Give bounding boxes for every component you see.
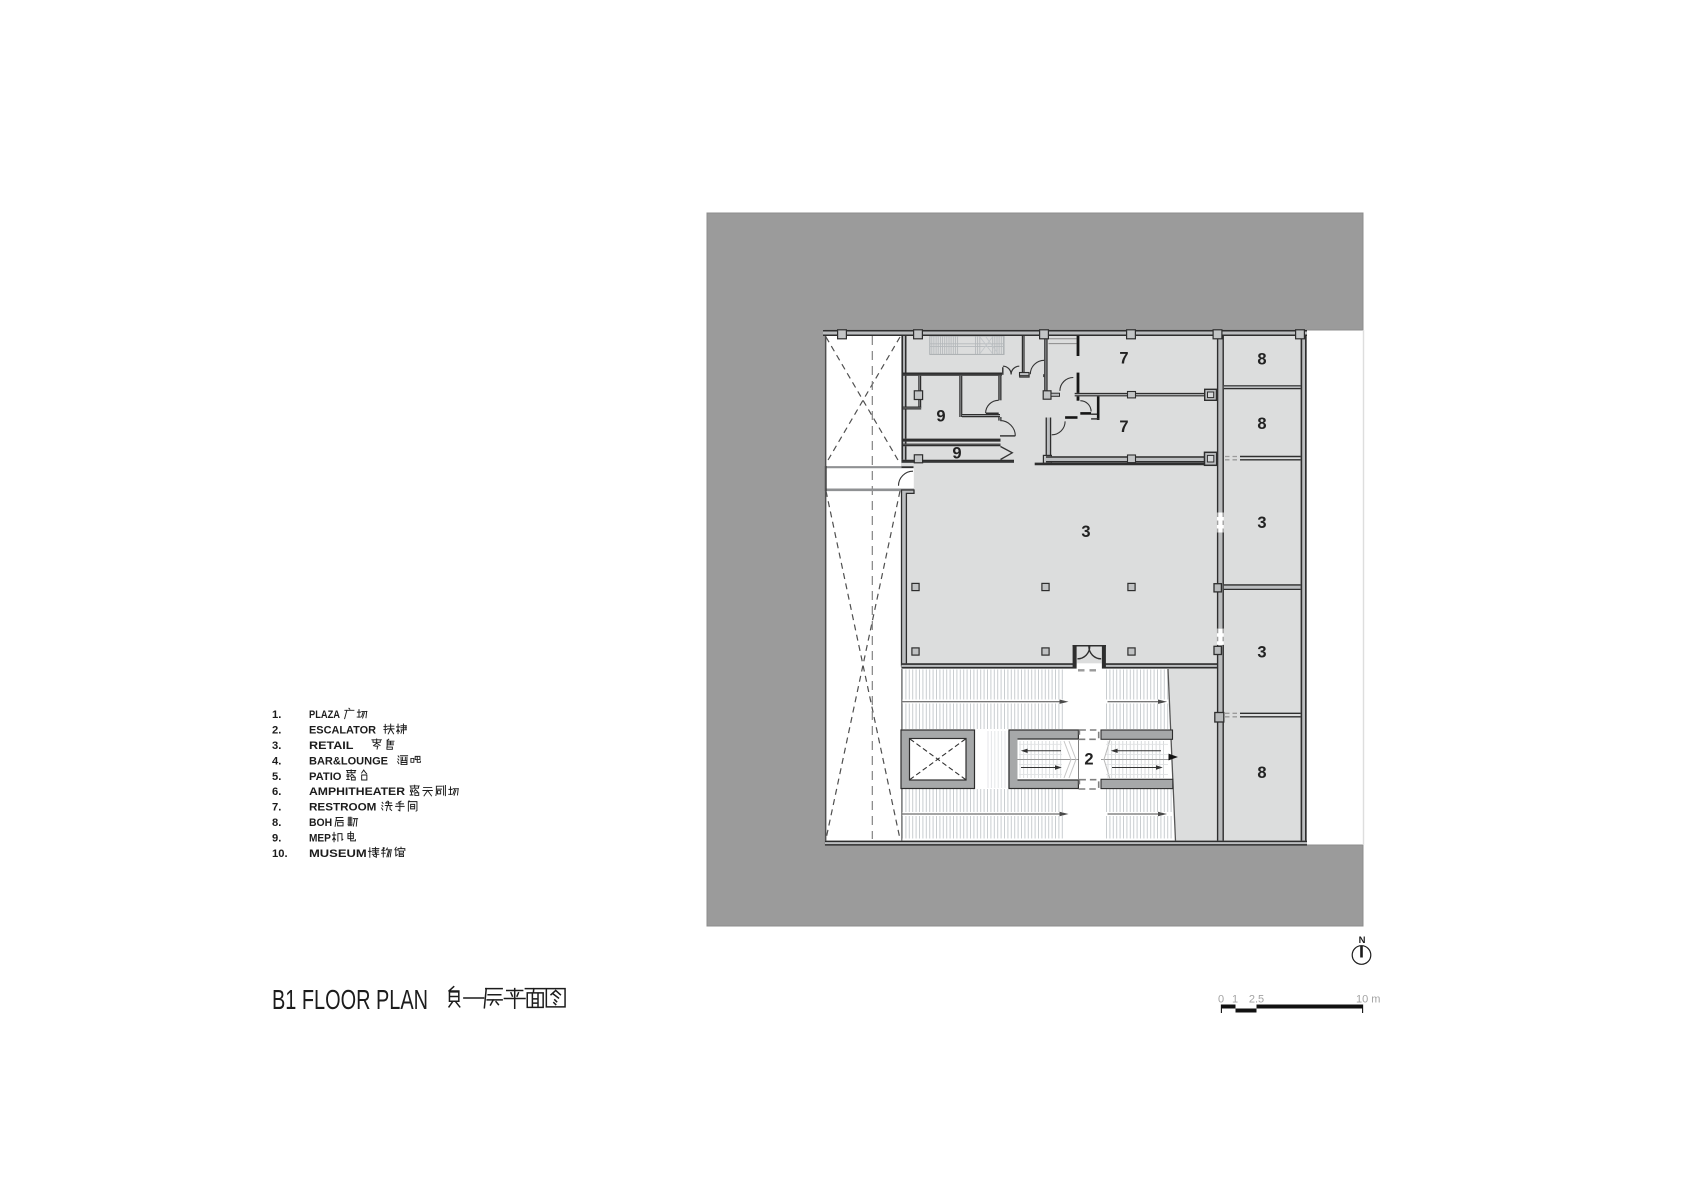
svg-text:PLAZA: PLAZA (309, 709, 340, 721)
svg-text:0: 0 (1218, 994, 1224, 1006)
svg-text:ESCALATOR: ESCALATOR (309, 725, 376, 737)
svg-text:PATIO: PATIO (309, 771, 342, 783)
svg-text:8.: 8. (272, 817, 281, 829)
svg-text:9.: 9. (272, 833, 281, 845)
svg-text:3: 3 (1257, 514, 1266, 532)
svg-text:3.: 3. (272, 740, 281, 752)
svg-text:2.: 2. (272, 725, 281, 737)
svg-text:1.: 1. (272, 709, 281, 721)
svg-text:1: 1 (1232, 994, 1238, 1006)
svg-text:6.: 6. (272, 786, 281, 798)
svg-text:7: 7 (1119, 418, 1128, 436)
svg-text:N: N (1359, 935, 1366, 946)
svg-text:7: 7 (1119, 350, 1128, 368)
svg-text:9: 9 (952, 445, 961, 463)
svg-text:8: 8 (1257, 764, 1266, 782)
svg-text:RESTROOM: RESTROOM (309, 802, 376, 814)
svg-text:2.5: 2.5 (1249, 994, 1264, 1006)
svg-text:9: 9 (936, 408, 945, 426)
svg-text:MUSEUM: MUSEUM (309, 848, 367, 860)
svg-text:8: 8 (1257, 415, 1266, 433)
svg-text:8: 8 (1257, 351, 1266, 369)
svg-text:RETAIL: RETAIL (309, 740, 354, 752)
svg-text:5.: 5. (272, 771, 281, 783)
svg-text:2: 2 (1084, 751, 1093, 769)
svg-text:3: 3 (1081, 523, 1090, 541)
svg-text:10 m: 10 m (1356, 994, 1380, 1006)
svg-text:B1 FLOOR PLAN: B1 FLOOR PLAN (272, 984, 428, 1015)
svg-text:AMPHITHEATER: AMPHITHEATER (309, 786, 405, 798)
svg-text:BOH: BOH (309, 817, 332, 829)
svg-text:10.: 10. (272, 848, 288, 860)
svg-text:4.: 4. (272, 755, 281, 767)
svg-text:7.: 7. (272, 802, 281, 814)
svg-text:3: 3 (1257, 644, 1266, 662)
svg-text:BAR&LOUNGE: BAR&LOUNGE (309, 755, 389, 767)
svg-text:MEP: MEP (309, 833, 331, 845)
